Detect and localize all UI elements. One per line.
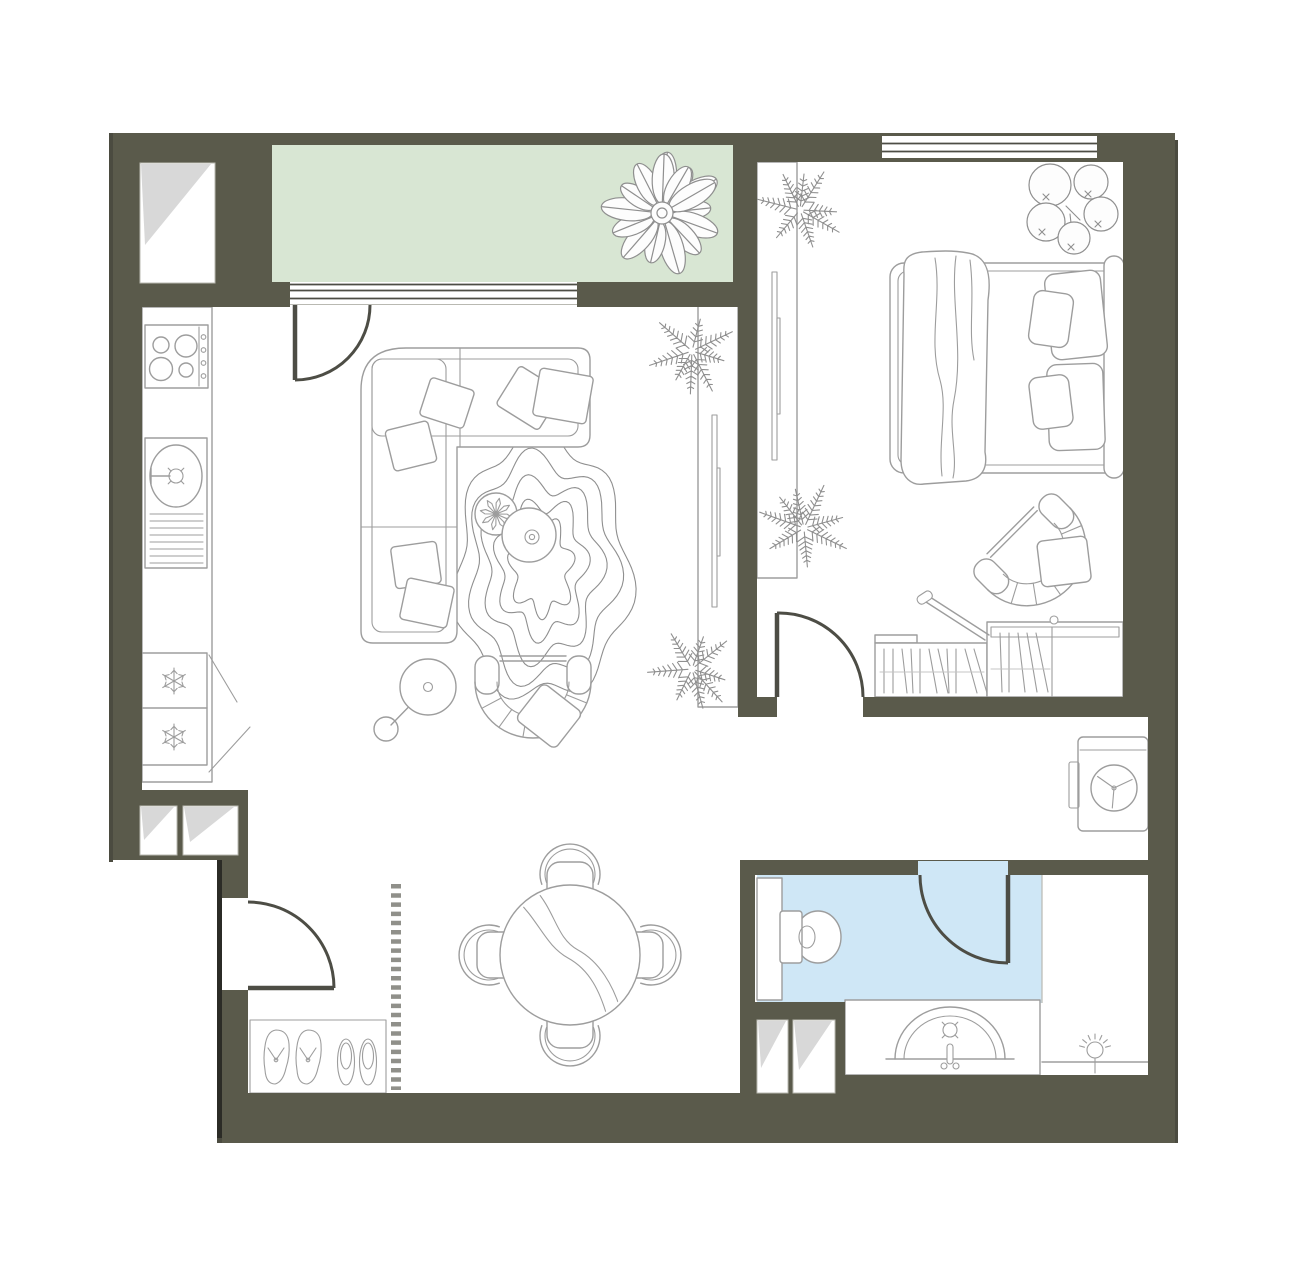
bathroom-door-opening bbox=[918, 861, 1008, 875]
wall-left bbox=[113, 307, 142, 860]
kitchen-sink bbox=[145, 438, 207, 568]
wall-right bbox=[1123, 162, 1175, 717]
double-bed bbox=[890, 251, 1125, 484]
vent-shaft-icon bbox=[757, 1020, 788, 1093]
toilet bbox=[780, 911, 841, 963]
washing-machine bbox=[1069, 737, 1148, 831]
vanity-sink bbox=[845, 1000, 1040, 1075]
bed-cushion bbox=[1028, 374, 1074, 430]
vent-shaft-icon bbox=[183, 806, 238, 855]
wall-bottom bbox=[222, 1093, 1175, 1143]
throw-pillow bbox=[532, 368, 594, 425]
blanket bbox=[901, 251, 989, 484]
bathroom-cabinet bbox=[757, 878, 782, 1000]
balcony-window bbox=[290, 283, 577, 305]
vent-shaft-icon bbox=[140, 806, 177, 855]
throw-pillow bbox=[399, 577, 455, 628]
vent-shaft-icon bbox=[140, 163, 215, 283]
dining-table bbox=[500, 885, 640, 1025]
bed-cushion bbox=[1027, 289, 1074, 348]
stove bbox=[145, 325, 208, 388]
headboard bbox=[1104, 256, 1124, 478]
floor-plan-canvas bbox=[0, 0, 1290, 1280]
coffee-table-round bbox=[502, 508, 556, 562]
wall-living-bedroom bbox=[738, 307, 757, 717]
wall-balcony-top bbox=[272, 133, 733, 145]
chest-knob bbox=[1050, 616, 1058, 624]
bedroom-door-opening bbox=[777, 697, 863, 717]
entrance-opening bbox=[222, 898, 248, 990]
vent-shaft-icon bbox=[793, 1020, 835, 1093]
bedroom-window bbox=[882, 136, 1097, 158]
floor-plan-svg bbox=[0, 0, 1290, 1280]
